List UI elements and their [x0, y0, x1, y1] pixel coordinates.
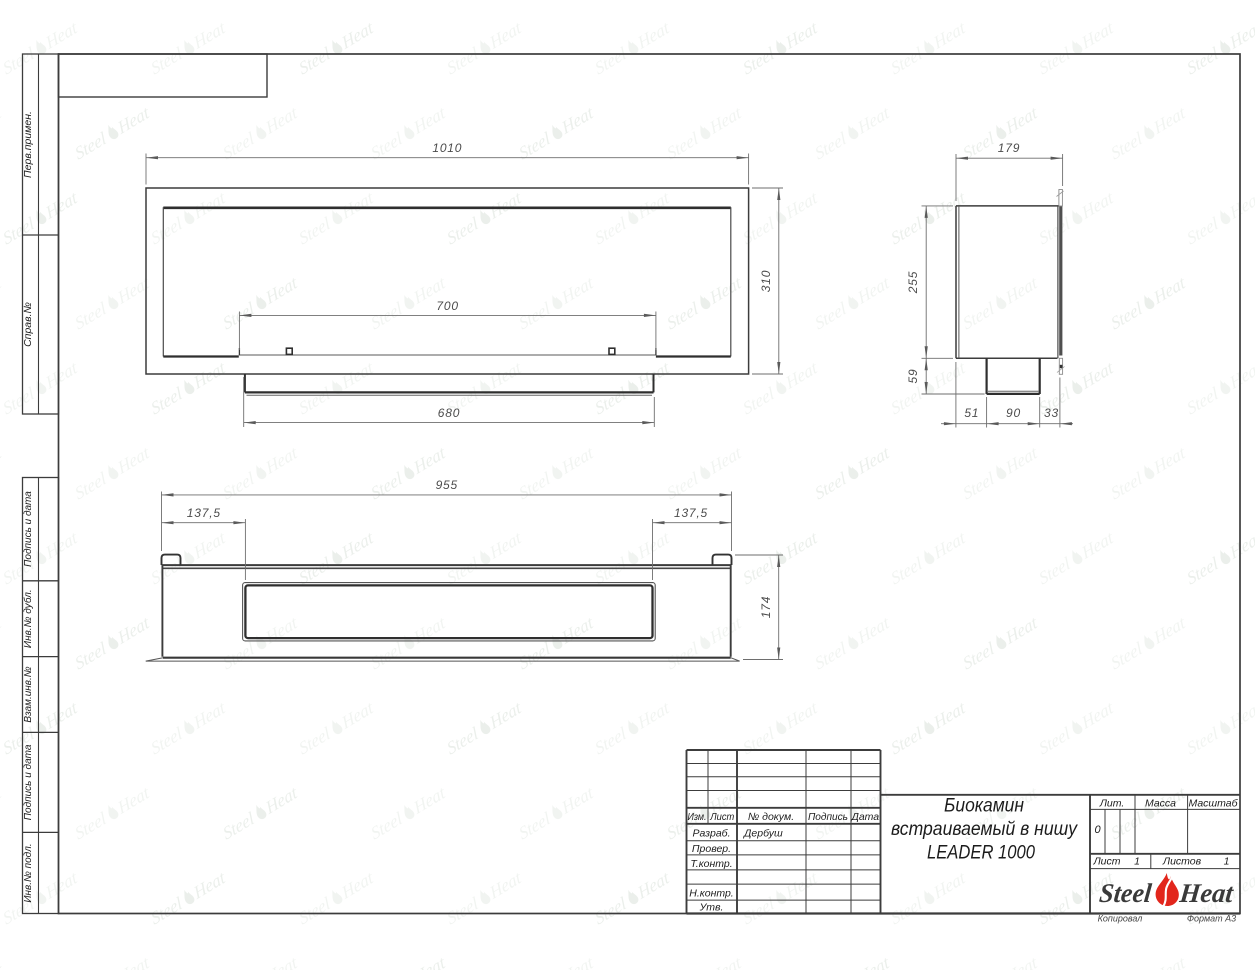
svg-text:Справ.№: Справ.№ — [22, 302, 34, 347]
svg-text:Подпись: Подпись — [808, 811, 848, 823]
svg-text:700: 700 — [436, 299, 458, 313]
svg-text:255: 255 — [906, 271, 920, 294]
svg-text:59: 59 — [906, 369, 920, 384]
svg-text:680: 680 — [438, 406, 460, 420]
svg-text:Лист: Лист — [1092, 856, 1120, 868]
svg-text:Дата: Дата — [850, 811, 879, 823]
svg-text:0: 0 — [1094, 824, 1101, 836]
svg-text:Т.контр.: Т.контр. — [690, 858, 732, 870]
svg-text:Листов: Листов — [1162, 856, 1202, 868]
svg-text:179: 179 — [998, 141, 1020, 155]
svg-text:Перв.примен.: Перв.примен. — [22, 111, 34, 178]
svg-text:137,5: 137,5 — [674, 506, 708, 520]
svg-text:Н.контр.: Н.контр. — [689, 888, 733, 900]
svg-text:1010: 1010 — [432, 141, 462, 155]
svg-text:Масса: Масса — [1145, 797, 1176, 809]
svg-text:Heat: Heat — [1177, 878, 1236, 908]
svg-text:Формат А3: Формат А3 — [1187, 914, 1236, 924]
svg-text:955: 955 — [436, 478, 458, 492]
svg-text:Взам.инв.№: Взам.инв.№ — [23, 666, 34, 722]
svg-text:Steel: Steel — [1098, 878, 1154, 908]
svg-text:Биокамин: Биокамин — [944, 796, 1024, 817]
svg-text:Лит.: Лит. — [1099, 797, 1125, 809]
svg-text:Инв.№ дубл.: Инв.№ дубл. — [22, 589, 34, 648]
svg-text:Подпись и дата: Подпись и дата — [23, 491, 34, 567]
svg-text:90: 90 — [1006, 406, 1021, 420]
svg-text:Провер.: Провер. — [692, 843, 731, 855]
svg-text:встраиваемый в нишу: встраиваемый в нишу — [891, 819, 1078, 840]
svg-text:33: 33 — [1044, 406, 1059, 420]
svg-text:Инв.№ подл.: Инв.№ подл. — [23, 843, 34, 902]
svg-text:1: 1 — [1224, 856, 1230, 868]
svg-text:Утв.: Утв. — [699, 902, 724, 914]
svg-text:51: 51 — [964, 406, 979, 420]
svg-text:№ докум.: № докум. — [748, 811, 794, 823]
svg-text:Копировал: Копировал — [1098, 914, 1143, 924]
svg-text:Подпись и дата: Подпись и дата — [23, 744, 34, 820]
svg-text:Лист: Лист — [709, 811, 734, 823]
svg-text:1: 1 — [1134, 856, 1140, 868]
svg-text:137,5: 137,5 — [187, 506, 221, 520]
svg-text:Разраб.: Разраб. — [693, 827, 731, 839]
svg-text:Изм.: Изм. — [688, 811, 707, 823]
svg-text:LEADER 1000: LEADER 1000 — [927, 843, 1035, 864]
svg-text:310: 310 — [759, 270, 773, 292]
svg-text:174: 174 — [759, 596, 773, 618]
svg-text:Дербуш: Дербуш — [743, 827, 783, 839]
svg-text:Масштаб: Масштаб — [1188, 797, 1238, 809]
